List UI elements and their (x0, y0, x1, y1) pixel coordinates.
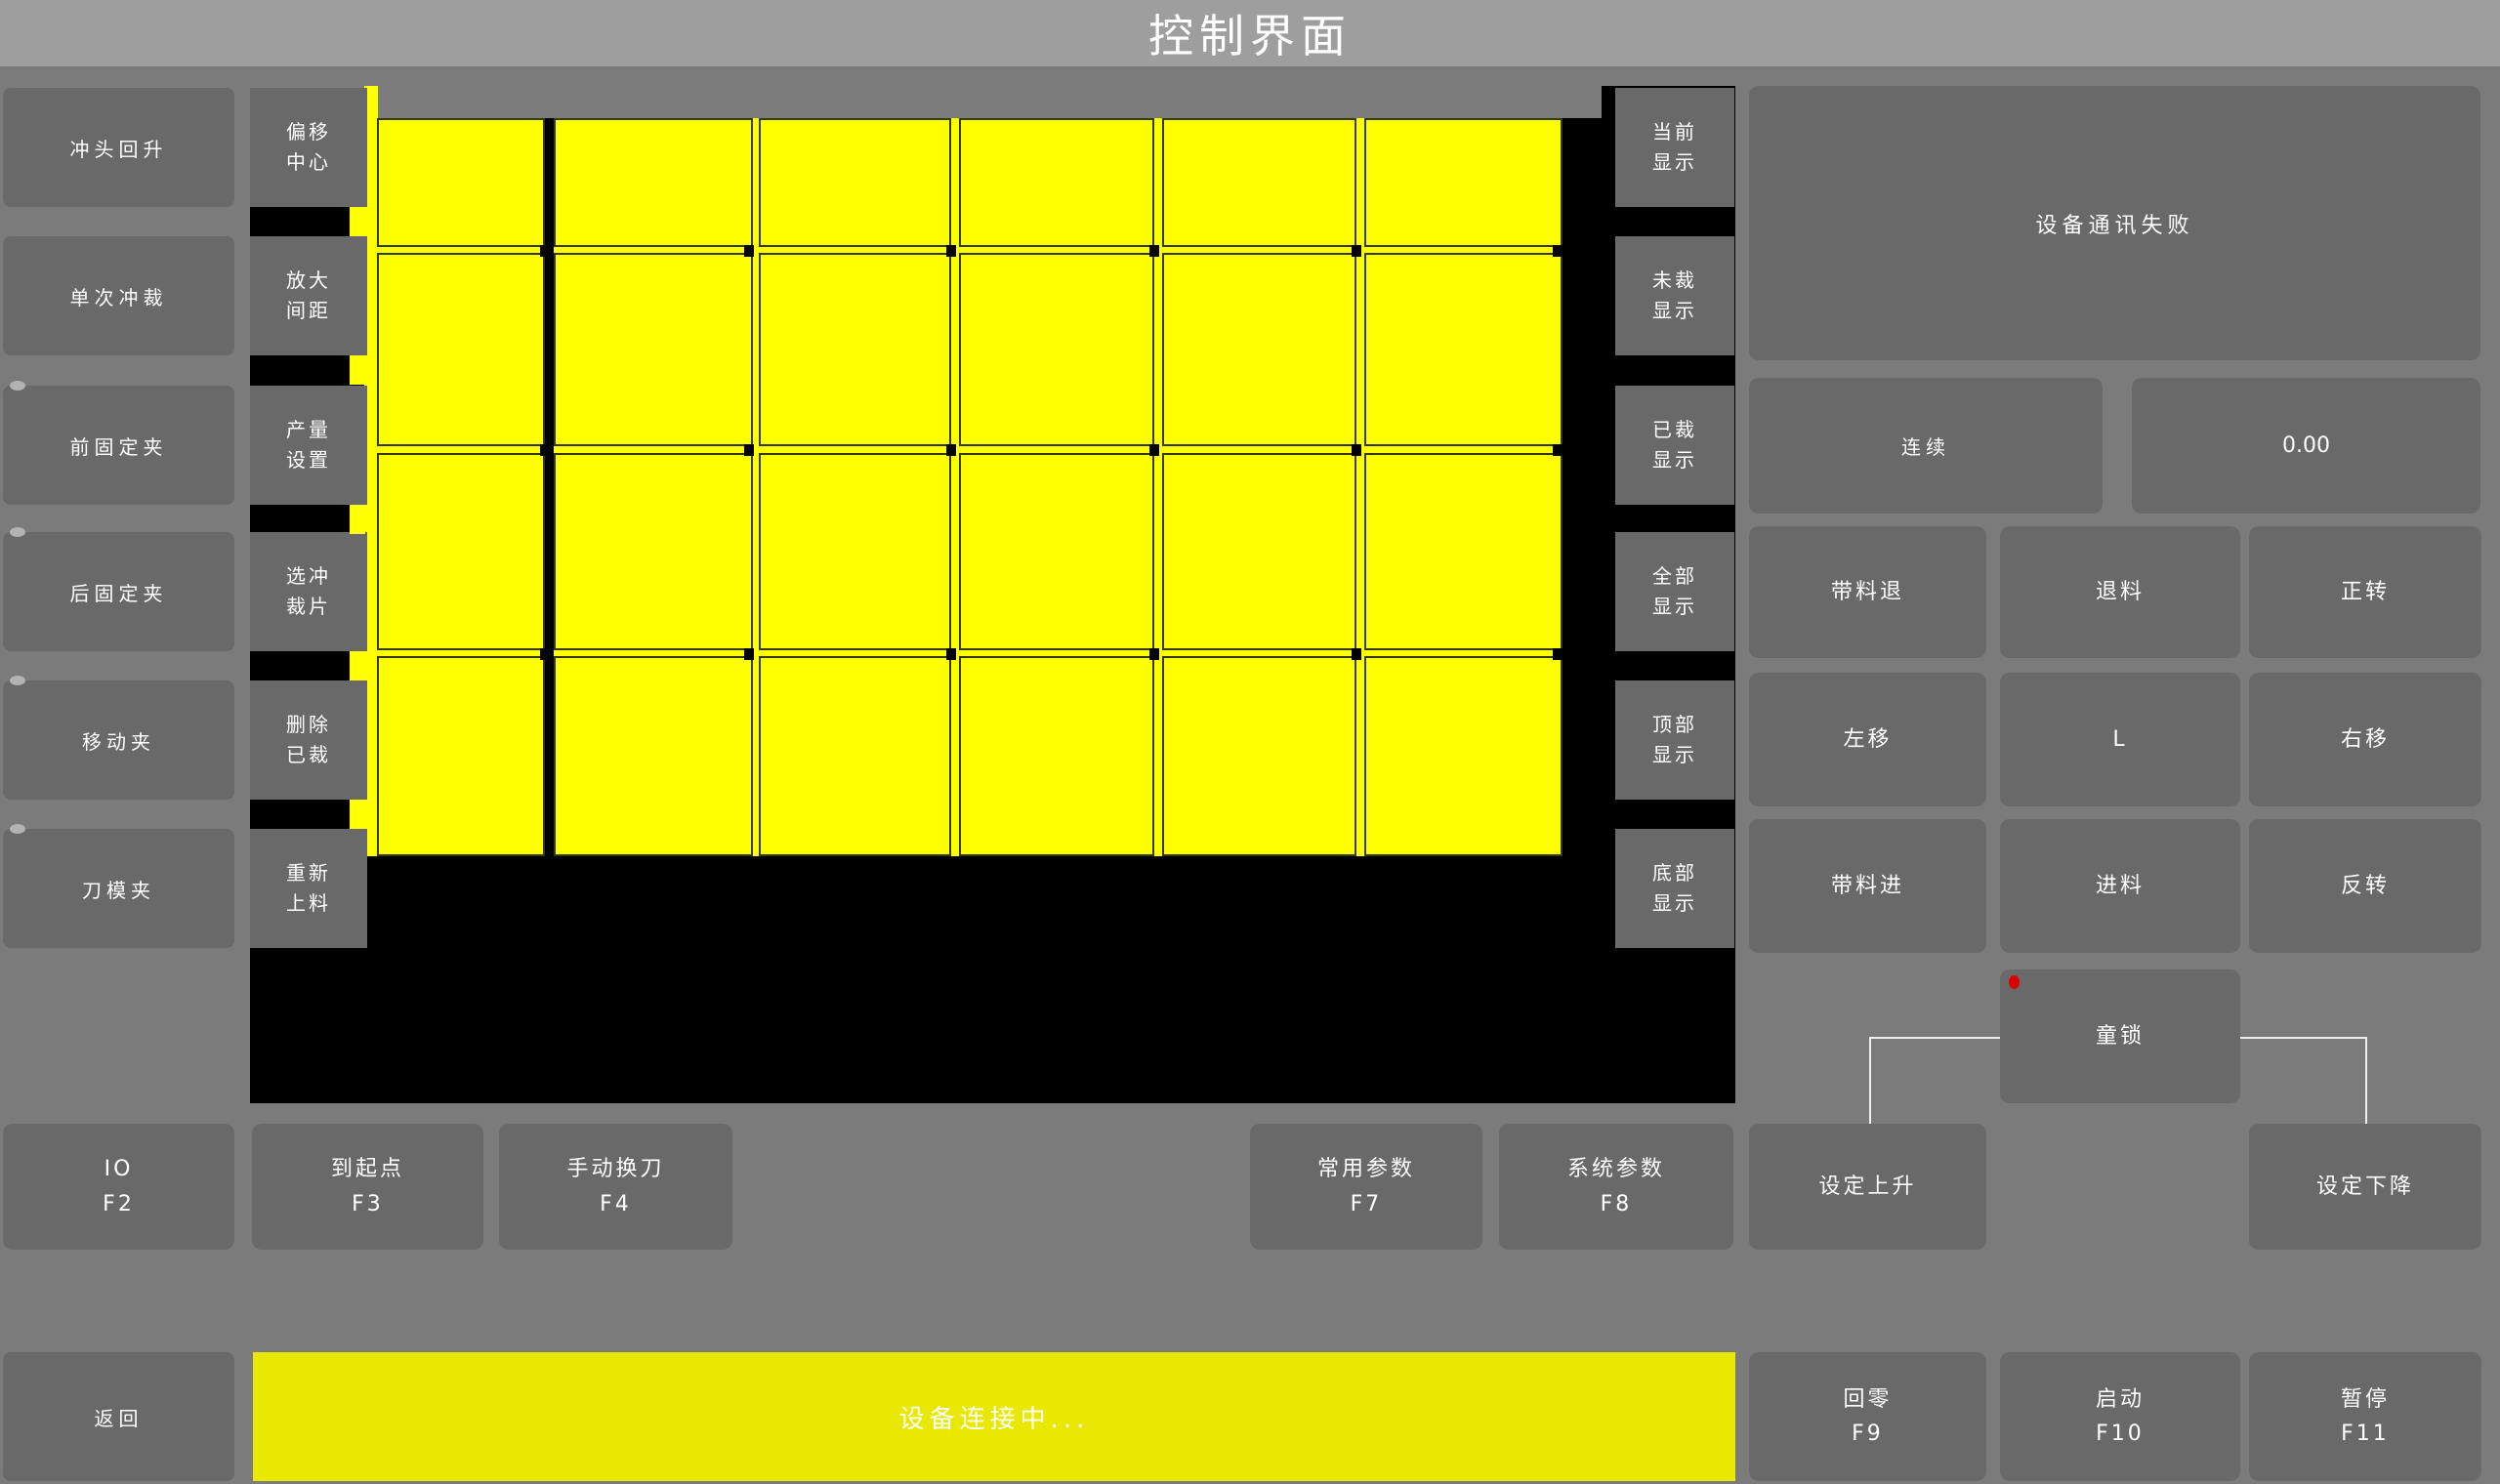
set-lower-button[interactable]: 设定下降 (2249, 1124, 2481, 1250)
cut-piece[interactable] (1364, 453, 1562, 650)
back-button[interactable]: 返回 (3, 1352, 234, 1481)
grid-tick (1149, 444, 1159, 456)
continuous-mode-button[interactable]: 连续 (1749, 378, 2103, 514)
grid-tick (1553, 444, 1562, 456)
cut-piece[interactable] (759, 453, 951, 650)
select-piece-button[interactable]: 选冲 裁片 (250, 532, 367, 651)
cut-piece[interactable] (554, 253, 753, 446)
status-dot-icon (10, 381, 25, 391)
alert-dot-icon (2009, 975, 2020, 989)
cut-piece[interactable] (1162, 656, 1356, 856)
grid-tick (540, 444, 550, 456)
show-cut-button[interactable]: 已裁 显示 (1615, 386, 1734, 505)
grid-column-gap (545, 118, 554, 856)
cut-piece[interactable] (377, 253, 545, 446)
grid-tick (1553, 245, 1562, 257)
strip-tab (350, 505, 365, 534)
position-value: 0.00 (2132, 378, 2480, 514)
single-punch-button[interactable]: 单次冲裁 (3, 236, 234, 355)
status-dot-icon (10, 676, 25, 685)
strip-tab (350, 355, 365, 385)
cut-piece[interactable] (759, 118, 951, 247)
home-f9-button[interactable]: 回零 F9 (1749, 1352, 1986, 1481)
rear-clamp-button[interactable]: 后固定夹 (3, 532, 234, 651)
grid-tick (1149, 245, 1159, 257)
zoom-spacing-button[interactable]: 放大 间距 (250, 236, 367, 355)
forward-rotate-button[interactable]: 正转 (2249, 526, 2481, 658)
child-lock-button[interactable]: 童锁 (2000, 969, 2240, 1103)
cut-piece[interactable] (759, 253, 951, 446)
connection-status-text: 设备连接中... (899, 1399, 1090, 1435)
connector-line (1869, 1037, 1871, 1124)
set-rise-button[interactable]: 设定上升 (1749, 1124, 1986, 1250)
show-all-button[interactable]: 全部 显示 (1615, 532, 1734, 651)
fn-to-origin-f3-button[interactable]: 到起点 F3 (252, 1124, 483, 1250)
show-current-button[interactable]: 当前 显示 (1615, 88, 1734, 207)
pause-f11-button[interactable]: 暂停 F11 (2249, 1352, 2481, 1481)
reload-material-button[interactable]: 重新 上料 (250, 829, 367, 948)
feed-back-with-material-button[interactable]: 带料退 (1749, 526, 1986, 658)
front-clamp-button[interactable]: 前固定夹 (3, 386, 234, 505)
cut-piece[interactable] (759, 656, 951, 856)
grid-tick (540, 245, 550, 257)
show-bottom-button[interactable]: 底部 显示 (1615, 829, 1734, 948)
show-top-button[interactable]: 顶部 显示 (1615, 680, 1734, 800)
cut-piece[interactable] (1364, 656, 1562, 856)
status-dot-icon (10, 527, 25, 537)
output-setting-button[interactable]: 产量 设置 (250, 386, 367, 505)
grid-tick (946, 444, 956, 456)
l-button[interactable]: L (2000, 673, 2240, 806)
cut-piece[interactable] (1162, 118, 1356, 247)
start-f10-button[interactable]: 启动 F10 (2000, 1352, 2240, 1481)
cut-piece[interactable] (959, 656, 1154, 856)
reverse-rotate-button[interactable]: 反转 (2249, 819, 2481, 953)
grid-tick (1352, 444, 1361, 456)
fn-common-params-f7-button[interactable]: 常用参数 F7 (1250, 1124, 1482, 1250)
die-clamp-button[interactable]: 刀模夹 (3, 829, 234, 948)
feed-material-button[interactable]: 进料 (2000, 819, 2240, 953)
fn-manual-toolchange-f4-button[interactable]: 手动换刀 F4 (499, 1124, 732, 1250)
connection-status-bar: 设备连接中... (253, 1352, 1735, 1481)
grid-tick (744, 444, 754, 456)
punch-up-button[interactable]: 冲头回升 (3, 88, 234, 207)
grid-tick (1352, 245, 1361, 257)
strip-tab (350, 651, 365, 680)
cut-piece[interactable] (377, 453, 545, 650)
cut-piece[interactable] (554, 453, 753, 650)
grid-tick (946, 648, 956, 660)
cut-piece[interactable] (1364, 253, 1562, 446)
grid-tick (744, 648, 754, 660)
cut-piece[interactable] (1162, 253, 1356, 446)
comm-status-panel: 设备通讯失败 (1749, 86, 2480, 360)
retract-material-button[interactable]: 退料 (2000, 526, 2240, 658)
grid-tick (1149, 648, 1159, 660)
grid-tick (946, 245, 956, 257)
show-uncut-button[interactable]: 未裁 显示 (1615, 236, 1734, 355)
cut-piece[interactable] (959, 118, 1154, 247)
cut-piece[interactable] (1162, 453, 1356, 650)
cut-piece[interactable] (959, 253, 1154, 446)
connector-line (2365, 1037, 2367, 1124)
fn-system-params-f8-button[interactable]: 系统参数 F8 (1499, 1124, 1733, 1250)
feed-in-with-material-button[interactable]: 带料进 (1749, 819, 1986, 953)
delete-cut-button[interactable]: 删除 已裁 (250, 680, 367, 800)
move-right-button[interactable]: 右移 (2249, 673, 2481, 806)
strip-tab (350, 800, 365, 829)
connector-line (2240, 1037, 2365, 1039)
grid-tick (1352, 648, 1361, 660)
page-title: 控制界面 (1148, 1, 1352, 65)
cut-piece[interactable] (554, 118, 753, 247)
cut-piece[interactable] (554, 656, 753, 856)
grid-tick (1553, 648, 1562, 660)
offset-center-button[interactable]: 偏移 中心 (250, 88, 367, 207)
move-left-button[interactable]: 左移 (1749, 673, 1986, 806)
cut-piece[interactable] (377, 118, 545, 247)
cut-piece[interactable] (377, 656, 545, 856)
connector-line (1869, 1037, 2000, 1039)
grid-tick (744, 245, 754, 257)
status-dot-icon (10, 824, 25, 834)
moving-clamp-button[interactable]: 移动夹 (3, 680, 234, 800)
cut-piece[interactable] (959, 453, 1154, 650)
fn-io-f2-button[interactable]: IO F2 (3, 1124, 234, 1250)
cut-piece[interactable] (1364, 118, 1562, 247)
strip-tab (350, 207, 365, 236)
canvas-top-band (250, 86, 1602, 118)
grid-tick (540, 648, 550, 660)
title-bar: 控制界面 (0, 0, 2500, 66)
